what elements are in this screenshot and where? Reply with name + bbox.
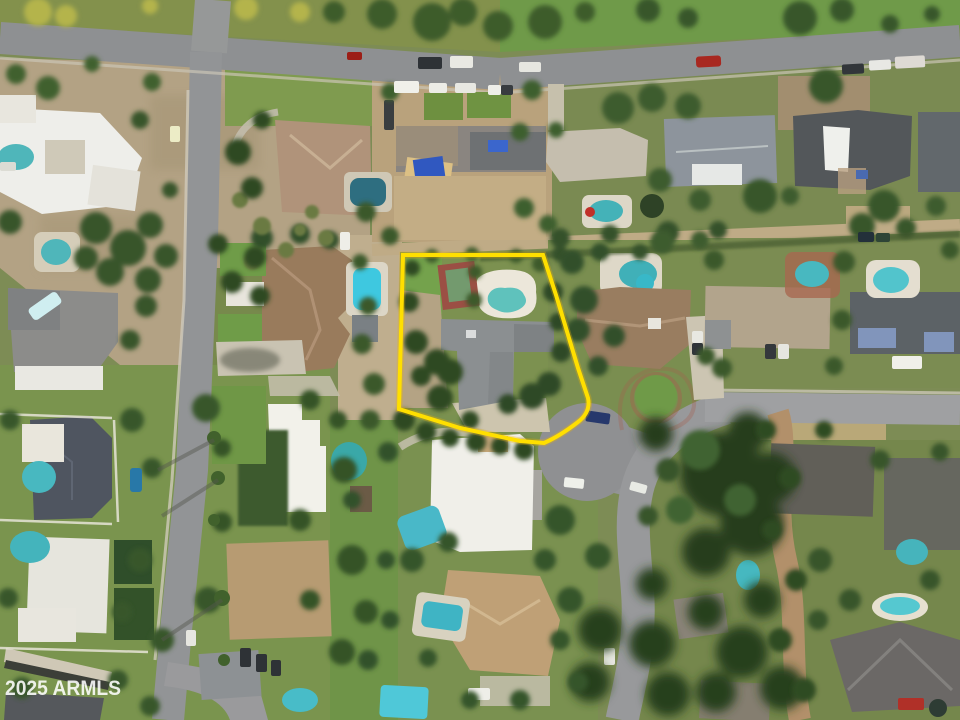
svg-text:2025 ARMLS: 2025 ARMLS bbox=[5, 676, 121, 700]
